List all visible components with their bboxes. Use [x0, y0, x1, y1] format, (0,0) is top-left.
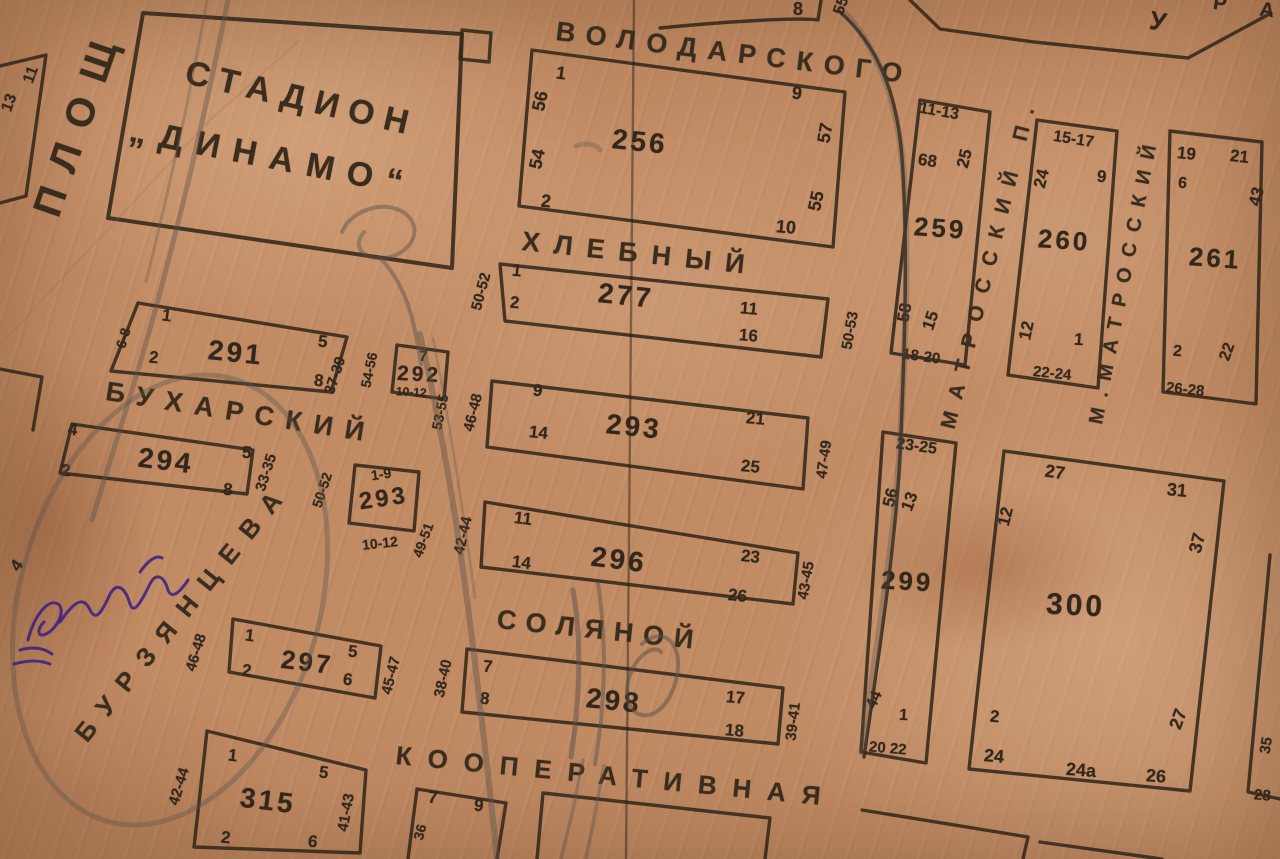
block-296-house-l: 14 [511, 553, 532, 572]
block-261-number: 261 [1188, 243, 1242, 273]
block-293-house-l: 14 [528, 423, 549, 442]
block-293s-range-bottom: 10-12 [361, 534, 398, 552]
block-256-house-tr: 9 [791, 84, 803, 103]
block-296-house-br: 26 [727, 586, 748, 605]
block-298-house-tl: 7 [482, 658, 493, 676]
block-277-outline [500, 264, 828, 357]
block-294-house-tr: 5 [241, 444, 252, 462]
fragment-top-8: 8 [793, 0, 803, 18]
block-261-house-t2: 21 [1229, 147, 1250, 166]
bottom-right-block-outline [862, 810, 1028, 859]
block-261-house-r: 43 [1246, 185, 1267, 207]
block-315-number: 315 [239, 784, 298, 819]
block-277-number: 277 [597, 279, 655, 313]
block-293-house-br: 25 [740, 457, 760, 476]
block-299-range-bottom: 20 22 [868, 739, 907, 757]
block-293-house-tr: 21 [745, 409, 765, 428]
block-296-number: 296 [590, 543, 649, 578]
block-293-house-tl: 9 [532, 382, 543, 400]
block-300-house-tr: 31 [1166, 480, 1188, 500]
block-297-house-bl: 2 [241, 662, 252, 680]
block-256-house-rb: 55 [805, 189, 827, 212]
block-291-house-tr: 5 [317, 333, 328, 351]
block-260-number: 260 [1037, 225, 1091, 255]
block-298-range-right: 39-41 [783, 702, 803, 742]
block-260-range-bottom: 22-24 [1032, 364, 1072, 383]
block-256-house-br: 10 [775, 217, 797, 237]
block-300-house-br: 26 [1145, 766, 1166, 785]
block-256-house-l2: 54 [526, 147, 548, 170]
block-299-house-b2: 1 [898, 708, 908, 725]
block-297-number: 297 [280, 646, 335, 678]
block-294-house-bl: 2 [60, 462, 71, 480]
historical-city-map: ВОЛОДАРСКОГО ХЛЕБНЫЙ БУХАРСКИЙ СОЛЯНОЙ К… [0, 0, 1280, 859]
block-298-house-l: 8 [479, 690, 490, 708]
bottom-wide-block-outline [537, 793, 770, 859]
block-293-number: 293 [605, 410, 663, 444]
block-294-house-br: 8 [222, 481, 233, 499]
block-291-house-bl: 2 [148, 349, 159, 367]
block-298-house-br: 18 [724, 721, 744, 740]
block-315-house-bl: 2 [220, 829, 231, 847]
block-300-house-r: 37 [1186, 531, 1208, 555]
block-277-house-r: 11 [739, 299, 758, 318]
block-261-range-bottom: 26-28 [1165, 380, 1205, 399]
block-297-house-br: 6 [342, 671, 353, 689]
block-299-outline [861, 432, 956, 763]
block-256-number: 256 [611, 125, 669, 159]
block-259-house-r: 25 [954, 147, 975, 169]
block-260-house-b1: 12 [1016, 319, 1037, 341]
block-300-house-bc: 24а [1065, 760, 1096, 780]
block-315-house-br: 6 [307, 833, 318, 851]
block-259-number: 259 [913, 213, 967, 243]
curved-road-edge [839, 11, 905, 757]
block-299-number: 299 [880, 567, 934, 596]
fragment-right-35: 35 [1258, 736, 1276, 755]
block-260-house-r: 9 [1096, 168, 1107, 186]
block-300-house-bl2: 2 [989, 708, 1000, 726]
block-256-house-r: 57 [814, 122, 835, 145]
fragment-bottom-36: 36 [411, 823, 429, 842]
fragment-bottom-9: 9 [473, 797, 484, 815]
block-298-number: 298 [585, 684, 643, 718]
stadium-notch [460, 30, 491, 62]
block-300-house-tl: 27 [1044, 462, 1066, 483]
block-298-house-tr: 17 [725, 688, 745, 707]
block-261-house-t1: 19 [1176, 144, 1197, 163]
block-277-house-tl: 1 [511, 262, 522, 280]
block-261-house-l: 6 [1177, 176, 1188, 193]
block-261-house-b1: 2 [1172, 344, 1182, 361]
block-256-house-l1: 56 [529, 89, 551, 112]
left-edge-block2-outline [0, 369, 42, 430]
block-259-house-l: 68 [917, 151, 938, 170]
block-260-house-l: 24 [1031, 167, 1052, 189]
block-256-house-bl: 2 [540, 192, 552, 211]
fragment-right-28: 28 [1253, 787, 1271, 803]
block-292-number: 292 [396, 363, 441, 386]
block-300-house-l: 12 [995, 505, 1016, 527]
block-277-house-l: 2 [509, 294, 520, 312]
right-edge-block-outline [1248, 555, 1280, 799]
block-294-number: 294 [137, 444, 196, 479]
block-260-house-b2: 1 [1073, 331, 1084, 349]
block-300-house-bl: 24 [983, 746, 1005, 766]
block-297-house-tr: 5 [347, 643, 358, 661]
block-292-house-top: 7 [418, 349, 427, 365]
block-259-house-b1: 58 [894, 302, 914, 324]
block-296-house-tl: 11 [513, 509, 533, 528]
block-292-range-bottom: 10-12 [396, 385, 427, 399]
block-291-number: 291 [207, 336, 265, 370]
block-277-house-br: 16 [738, 326, 758, 345]
fragment-bottom-7: 7 [427, 789, 438, 807]
block-300-number: 300 [1045, 589, 1106, 622]
bottom-right-block2-outline [1040, 842, 1162, 859]
block-293s-range-top: 1-9 [370, 466, 392, 483]
block-296-house-tr: 23 [740, 547, 761, 566]
